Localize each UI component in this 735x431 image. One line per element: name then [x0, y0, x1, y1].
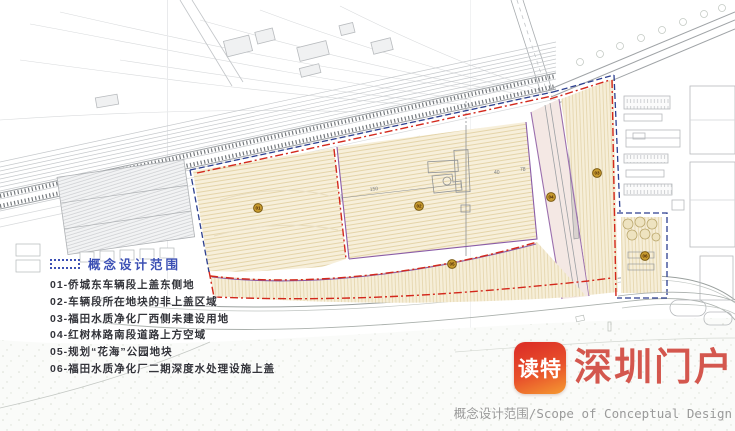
svg-text:06: 06 — [642, 254, 648, 259]
area-02-non-cover — [337, 98, 537, 259]
svg-text:01: 01 — [255, 206, 261, 211]
svg-text:03: 03 — [594, 171, 600, 176]
top-buildings — [95, 22, 393, 107]
svg-text:04: 04 — [548, 195, 554, 200]
svg-text:05: 05 — [449, 262, 455, 267]
marker-06: 06 — [641, 252, 650, 261]
legend-item-04: 04-红树林路南段道路上方空域 — [50, 327, 360, 344]
app-icon-label: 读特 — [518, 353, 562, 383]
marker-04: 04 — [547, 193, 556, 202]
site-plan-screenshot: 150 40 78 01 02 03 04 05 06 — [0, 0, 735, 431]
marker-03: 03 — [593, 169, 602, 178]
legend-item-02: 02-车辆段所在地块的非上盖区域 — [50, 294, 360, 311]
caption: 概念设计范围/Scope of Conceptual Design — [454, 403, 732, 422]
legend-item-05: 05-规划“花海”公园地块 — [50, 344, 360, 361]
area-01-depot-cover-east — [193, 148, 346, 272]
legend-item-03: 03-福田水质净化厂西侧未建设用地 — [50, 311, 360, 328]
shenzhen-portal-logo: 深圳门户 — [574, 342, 734, 394]
legend-item-06: 06-福田水质净化厂二期深度水处理设施上盖 — [50, 361, 360, 378]
legend: 概念设计范围 01-侨城东车辆段上盖东侧地 02-车辆段所在地块的非上盖区域 0… — [50, 256, 360, 378]
marker-02: 02 — [415, 202, 424, 211]
svg-text:02: 02 — [416, 204, 422, 209]
legend-items: 01-侨城东车辆段上盖东侧地 02-车辆段所在地块的非上盖区域 03-福田水质净… — [50, 277, 360, 378]
concept-scope-swatch-icon — [50, 259, 80, 269]
marker-05: 05 — [448, 260, 457, 269]
upper-right-road — [548, 5, 735, 105]
dim-150: 150 — [370, 186, 379, 193]
dim-40: 40 — [494, 170, 500, 176]
marker-01: 01 — [254, 204, 263, 213]
dutenews-app-icon: 读特 — [514, 342, 566, 394]
legend-title-row: 概念设计范围 — [50, 256, 360, 271]
legend-title: 概念设计范围 — [88, 254, 181, 273]
legend-item-01: 01-侨城东车辆段上盖东侧地 — [50, 277, 360, 294]
street-trees — [577, 5, 726, 66]
watermark: 读特 深圳门户 — [514, 342, 734, 394]
dim-78: 78 — [520, 167, 526, 173]
